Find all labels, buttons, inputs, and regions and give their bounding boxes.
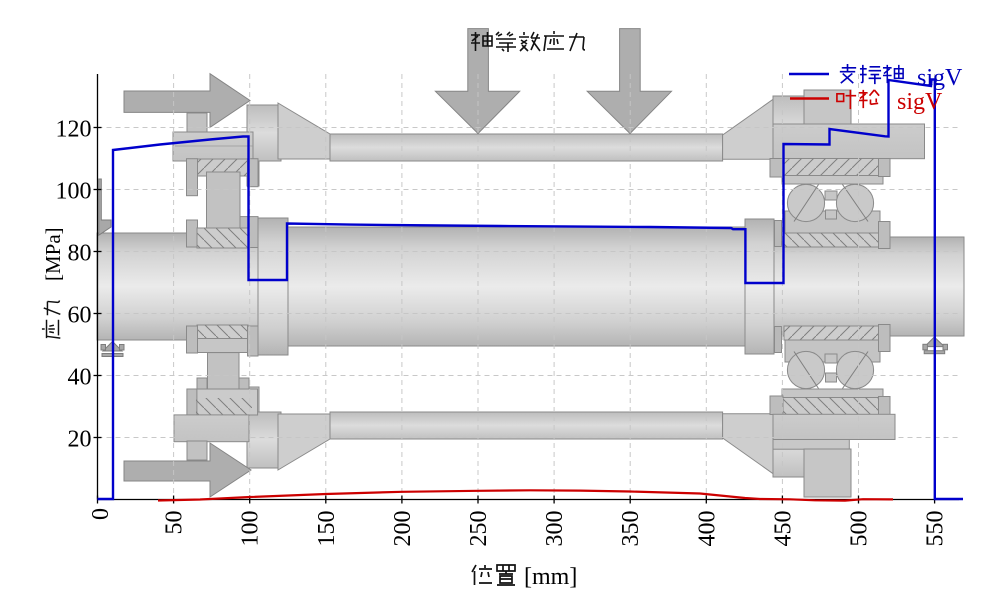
svg-text:50: 50 xyxy=(162,511,188,535)
svg-text:500: 500 xyxy=(847,511,873,547)
svg-text:250: 250 xyxy=(466,511,492,547)
svg-text:120: 120 xyxy=(56,117,92,143)
svg-text:[mm]: [mm] xyxy=(524,564,577,590)
svg-text:200: 200 xyxy=(390,511,416,547)
svg-text:100: 100 xyxy=(238,511,264,547)
svg-text:80: 80 xyxy=(68,241,92,267)
svg-text:[MPa]: [MPa] xyxy=(41,227,65,281)
svg-text:350: 350 xyxy=(618,511,644,547)
svg-text:40: 40 xyxy=(68,365,92,391)
svg-text:sigV: sigV xyxy=(917,65,963,91)
svg-text:450: 450 xyxy=(770,511,796,547)
svg-text:60: 60 xyxy=(68,303,92,329)
svg-text:20: 20 xyxy=(68,427,92,453)
svg-text:400: 400 xyxy=(694,511,720,547)
svg-text:300: 300 xyxy=(542,511,568,547)
svg-text:100: 100 xyxy=(56,179,92,205)
svg-text:sigV: sigV xyxy=(897,89,943,115)
svg-text:0: 0 xyxy=(88,508,114,520)
svg-text:150: 150 xyxy=(314,511,340,547)
svg-text:550: 550 xyxy=(923,511,949,547)
